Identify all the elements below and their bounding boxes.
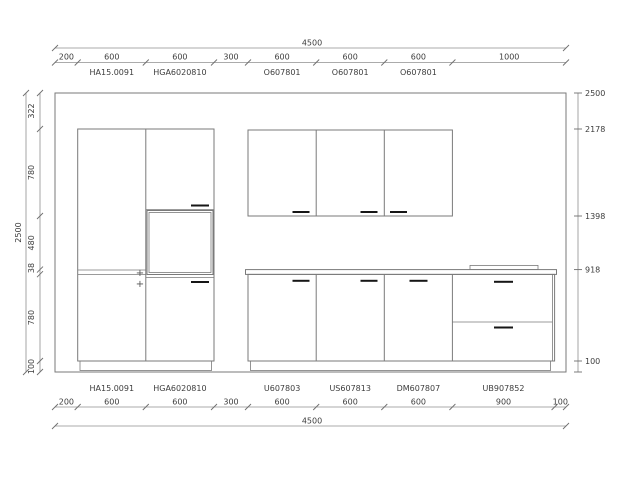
product-code: DM607807 (397, 384, 441, 393)
product-code: US607813 (329, 384, 370, 393)
product-code: HGA6020810 (153, 68, 206, 77)
product-code: UB907852 (483, 384, 525, 393)
dim-label: 480 (27, 235, 36, 250)
dim-label: 200 (59, 398, 74, 407)
product-code: O607801 (264, 68, 301, 77)
base-cabinet-outline (248, 274, 555, 361)
dim-label: 200 (59, 53, 74, 62)
oven-front (149, 213, 211, 273)
door-handle (293, 211, 310, 213)
drawer-handle (494, 281, 513, 283)
dimension-lines (23, 45, 582, 429)
dim-label: 300 (223, 53, 238, 62)
door-handle (390, 211, 407, 213)
left-dimension-labels: 2500 322 780 480 38 780 100 (14, 103, 36, 374)
door-handle (361, 211, 378, 213)
level-label: 2500 (585, 89, 605, 98)
oven-compartment (147, 211, 213, 275)
dim-label: 100 (553, 398, 568, 407)
cad-elevation-drawing: + + 4500 200 (0, 0, 640, 480)
drawing-canvas: + + 4500 200 (0, 0, 640, 480)
dim-label: 780 (27, 310, 36, 325)
drawer-handle (494, 327, 513, 329)
dim-label: 322 (27, 103, 36, 118)
dim-label: 4500 (302, 39, 322, 48)
tall-cabinet-plinth (80, 361, 212, 371)
base-cabinet-plinth (251, 361, 551, 371)
door-handle (191, 281, 209, 283)
product-code: HA15.0091 (90, 384, 135, 393)
dim-label: 600 (343, 53, 358, 62)
bottom-dimension-labels: HA15.0091 HGA6020810 U607803 US607813 DM… (59, 384, 568, 426)
alignment-plus-mark: + (136, 279, 144, 290)
product-code: U607803 (264, 384, 300, 393)
product-code: O607801 (332, 68, 369, 77)
countertop (246, 270, 557, 275)
product-code: O607801 (400, 68, 437, 77)
cooktop (470, 265, 538, 269)
dim-label: 780 (27, 165, 36, 180)
dim-label: 600 (104, 398, 119, 407)
door-handle (410, 280, 428, 282)
tall-cabinet-block: + + (78, 129, 214, 371)
dim-label: 600 (172, 53, 187, 62)
dim-label: 1000 (499, 53, 519, 62)
wall-cabinet-row (248, 130, 452, 216)
door-handle (191, 205, 209, 207)
top-dimension-labels: 4500 200 600 600 300 600 600 600 1000 HA… (59, 39, 520, 78)
dim-label: 600 (172, 398, 187, 407)
wall-elevation (55, 93, 566, 372)
dim-label: 600 (274, 53, 289, 62)
dim-label: 600 (343, 398, 358, 407)
dim-label: 900 (496, 398, 511, 407)
alignment-plus-mark: + (136, 268, 144, 279)
base-cabinet-run (246, 265, 557, 370)
level-label: 1398 (585, 212, 605, 221)
level-label: 2178 (585, 125, 605, 134)
dim-label: 2500 (14, 222, 23, 242)
level-label: 918 (585, 265, 600, 274)
dim-label: 600 (411, 53, 426, 62)
dim-label: 100 (27, 359, 36, 374)
product-code: HGA6020810 (153, 384, 206, 393)
right-level-labels: 2500 2178 1398 918 100 (585, 89, 605, 366)
wall-cabinet-outline (248, 130, 452, 216)
dim-label: 4500 (302, 417, 322, 426)
door-handle (293, 280, 310, 282)
wall-outline (55, 93, 566, 372)
door-handle (361, 280, 378, 282)
level-label: 100 (585, 357, 600, 366)
dim-label: 38 (27, 263, 36, 273)
dim-label: 600 (411, 398, 426, 407)
tick-marks (23, 45, 582, 429)
product-code: HA15.0091 (90, 68, 135, 77)
dim-label: 300 (223, 398, 238, 407)
dim-label: 600 (274, 398, 289, 407)
dim-label: 600 (104, 53, 119, 62)
